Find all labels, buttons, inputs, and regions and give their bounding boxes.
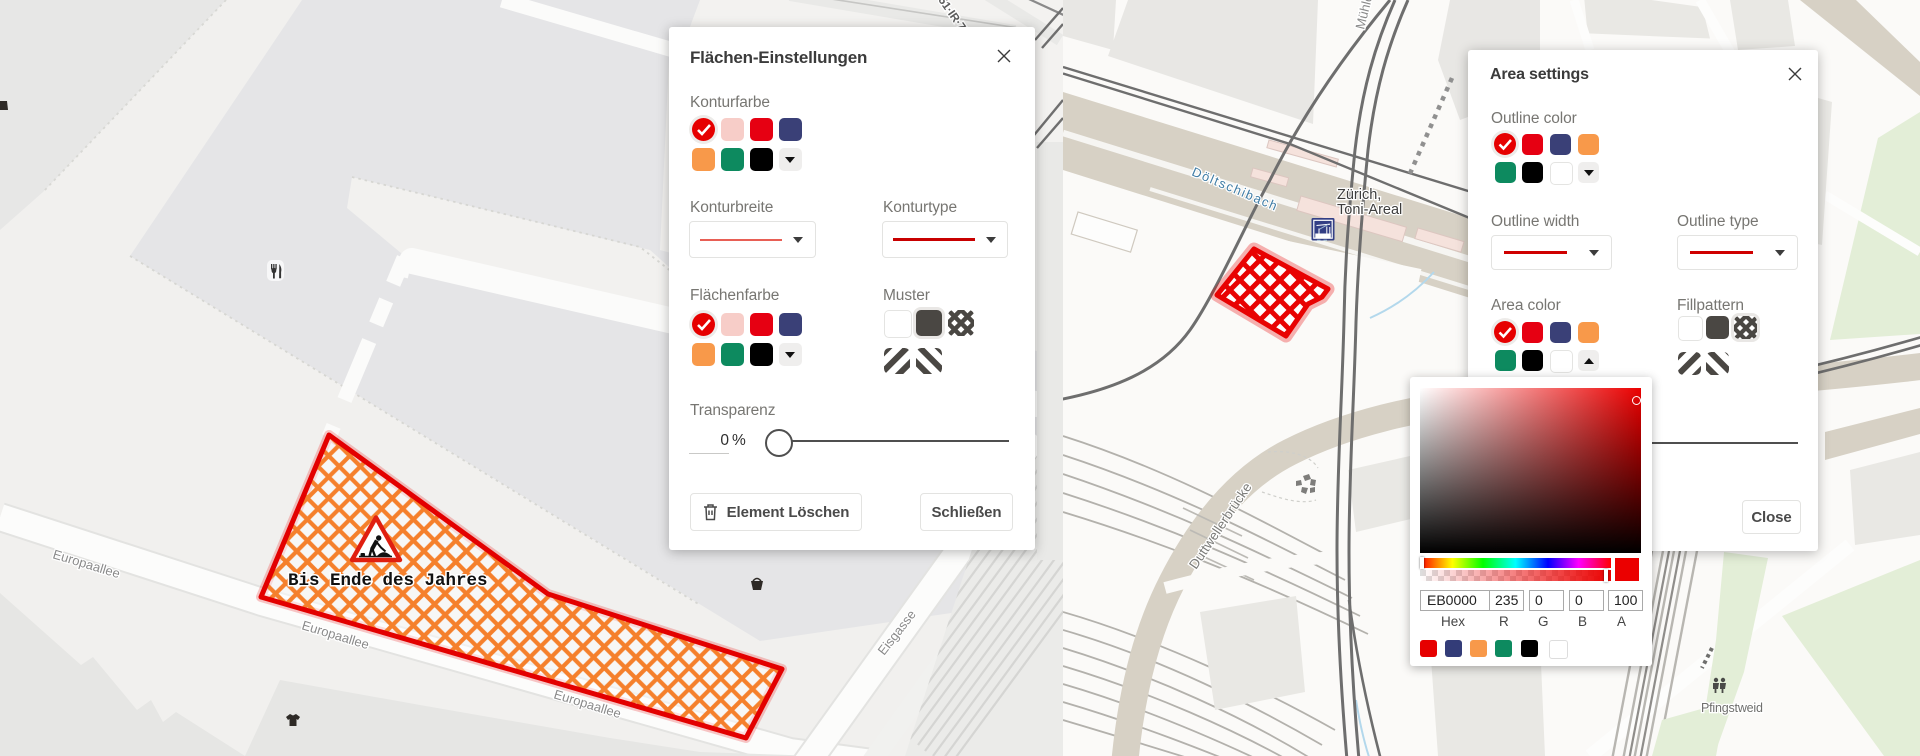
- svg-text:Pfingstweid: Pfingstweid: [1701, 701, 1763, 715]
- svg-text:Bis Ende des Jahres: Bis Ende des Jahres: [288, 571, 488, 591]
- svg-text:Toni-Areal: Toni-Areal: [1337, 202, 1402, 218]
- svg-text:Zürich,: Zürich,: [1337, 187, 1381, 203]
